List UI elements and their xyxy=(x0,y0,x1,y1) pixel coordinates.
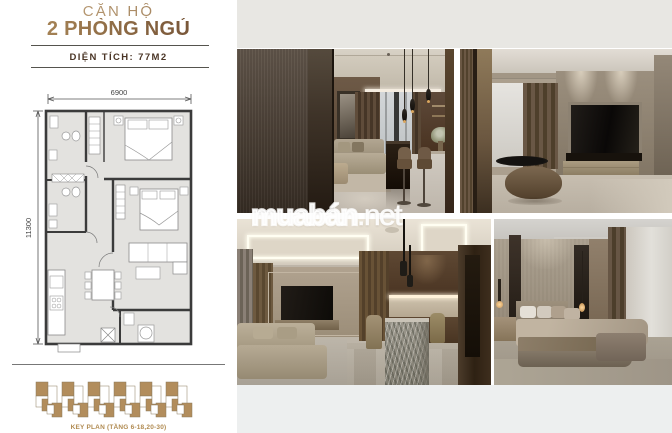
svg-text:6900: 6900 xyxy=(111,88,128,97)
svg-text:11300: 11300 xyxy=(24,218,33,238)
